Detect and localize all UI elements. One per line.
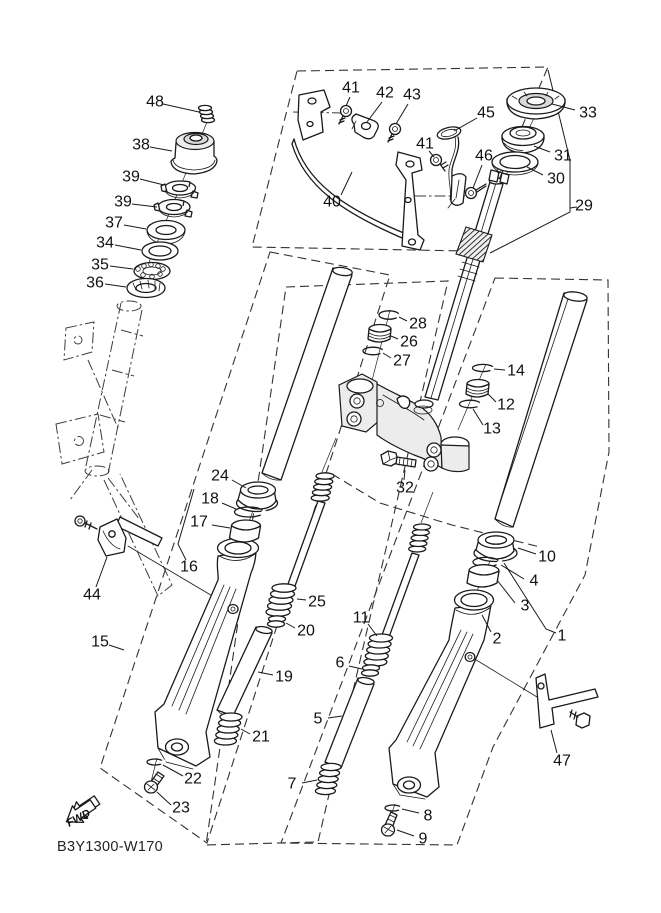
callout-1: 1 [558,628,567,645]
leader-line-3 [497,580,515,603]
part-28-o-ring [379,311,401,319]
part-34-washer [142,242,178,260]
part-27-o-ring [363,347,385,355]
part-25-spring [266,584,296,616]
callout-41: 41 [342,80,360,97]
leader-line-34 [115,245,141,250]
leader-line-13 [473,409,483,425]
leader-line-28 [399,317,407,321]
leader-line-12 [488,394,496,402]
callout-38: 38 [132,137,150,154]
callout-14: 14 [507,363,525,380]
part-7-rebound-spring [315,763,341,794]
leader-line-36 [105,284,126,287]
callout-23: 23 [172,800,190,817]
part-13-o-ring [460,400,483,408]
part-right-damper-top-spring [409,524,431,552]
leader-line-8 [402,809,419,813]
callout-39: 39 [122,169,140,186]
part-triple-clamp [339,374,469,472]
leader-line-43 [396,104,408,124]
part-38-stem-cap [171,133,217,175]
callout-46: 46 [475,148,493,165]
callout-4: 4 [530,573,539,590]
callout-2: 2 [493,631,502,648]
callout-25: 25 [308,594,326,611]
leader-line-30 [527,167,543,175]
callout-6: 6 [336,655,345,672]
callout-31: 31 [554,148,572,165]
leader-line-44 [96,557,107,587]
part-14-clip [473,364,496,371]
leader-line-24 [232,480,246,488]
part-41-screw-a [339,106,352,125]
part-29-steering-stem [425,169,509,400]
callout-34: 34 [96,235,114,252]
part-35-ball-bearing [134,262,170,279]
callout-24: 24 [211,468,229,485]
callout-32: 32 [396,480,414,497]
leader-line-39 [140,179,164,185]
part-47-reflector-bracket [536,674,598,728]
part-9-bolt [382,812,398,836]
callout-26: 26 [400,334,418,351]
callout-10: 10 [538,549,556,566]
callout-17: 17 [190,514,208,531]
callout-47: 47 [553,753,571,770]
callout-36: 36 [86,275,104,292]
part-5-damper-tube [325,676,375,768]
leader-line-37 [124,225,146,229]
callout-3: 3 [521,598,530,615]
leader-line-22 [163,765,183,776]
leader-line-11 [368,624,377,636]
fwd-arrow: FWD [61,792,103,830]
callout-42: 42 [376,85,394,102]
callout-30: 30 [547,171,565,188]
leader-line-18 [222,503,236,509]
callout-37: 37 [105,215,123,232]
leader-line-42 [367,102,382,122]
callout-41: 41 [416,136,434,153]
part-39-ring-nut-upper [161,181,198,198]
leader-line-39 [132,204,157,207]
part-43-screw [388,124,401,143]
part-left-inner-tube [262,266,353,480]
leader-line-6 [349,666,362,669]
part-40-fender-stay [292,90,467,250]
part-6-spring-seat [362,665,380,676]
part-48-cap-bolt [199,105,215,122]
part-39-ring-nut-lower [154,200,192,218]
part-17-bushing-left [230,520,261,542]
fwd-label: FWD [65,807,93,829]
callout-27: 27 [393,353,411,370]
diagram-code: B3Y1300-W170 [57,839,163,855]
callout-44: 44 [83,587,101,604]
leader-line-9 [397,830,414,836]
callout-21: 21 [252,729,270,746]
callout-9: 9 [419,831,428,848]
callout-19: 19 [275,669,293,686]
part-33-upper-bearing [507,88,565,119]
callout-33: 33 [579,105,597,122]
part-21-rebound-spring [214,713,242,745]
leader-line-19 [258,672,273,675]
part-left-damper-top-spring [311,473,334,501]
leader-line-25 [297,599,306,600]
part-left-damper-rod [288,501,325,586]
part-3-bushing-right [467,565,499,587]
callout-16: 16 [180,559,198,576]
callout-45: 45 [477,105,495,122]
part-26-cap-bolt [368,325,391,343]
leader-line-20 [286,623,295,628]
part-12-cap-bolt [466,380,489,398]
callout-8: 8 [424,808,433,825]
leader-line-15 [109,645,124,650]
callout-28: 28 [409,316,427,333]
part-41-screw-b [431,155,449,172]
part-right-damper-rod [382,553,419,637]
leader-line-14 [494,369,505,370]
leader-line-38 [150,147,172,151]
parts-diagram-page: 4838393937343536414243454146403331302928… [0,0,661,913]
leader-line-23 [157,792,171,805]
leader-line-10 [518,548,536,554]
leader-line-27 [383,353,391,358]
leader-line-26 [391,336,398,339]
part-44-hose-clamp [75,516,162,556]
callout-12: 12 [497,397,515,414]
part-right-outer-tube [389,590,494,799]
callout-5: 5 [314,711,323,728]
part-31-bearing-cover [502,127,544,154]
callout-22: 22 [184,771,202,788]
callout-18: 18 [201,491,219,508]
part-36-bearing-race [127,279,165,298]
leader-line-45 [454,118,477,131]
callout-29: 29 [575,198,593,215]
leader-line-46 [473,165,482,188]
part-10-dust-seal-right [474,532,517,562]
callout-43: 43 [403,87,421,104]
callout-40: 40 [323,194,341,211]
callout-20: 20 [297,623,315,640]
callout-7: 7 [288,776,297,793]
leader-line-47 [551,730,557,753]
part-20-spring-seat [268,616,286,627]
callout-13: 13 [483,421,501,438]
part-46-wire-bracket [448,174,486,208]
leader-line-5 [328,716,342,718]
leader-line-40 [341,172,352,195]
part-37-bearing-cover [147,221,185,245]
leader-line-17 [212,525,230,528]
part-23-drain-screw [145,772,165,793]
callout-48: 48 [146,94,164,111]
callout-35: 35 [91,257,109,274]
callout-11: 11 [353,610,370,627]
leader-line-35 [110,266,133,269]
callout-39: 39 [114,194,132,211]
part-42-clamp [352,114,378,139]
front-fork-exploded-diagram: 4838393937343536414243454146403331302928… [0,0,661,913]
callout-15: 15 [91,634,109,651]
leader-line-41 [346,97,350,106]
leader-line-48 [163,104,199,112]
part-11-spring [364,634,393,666]
